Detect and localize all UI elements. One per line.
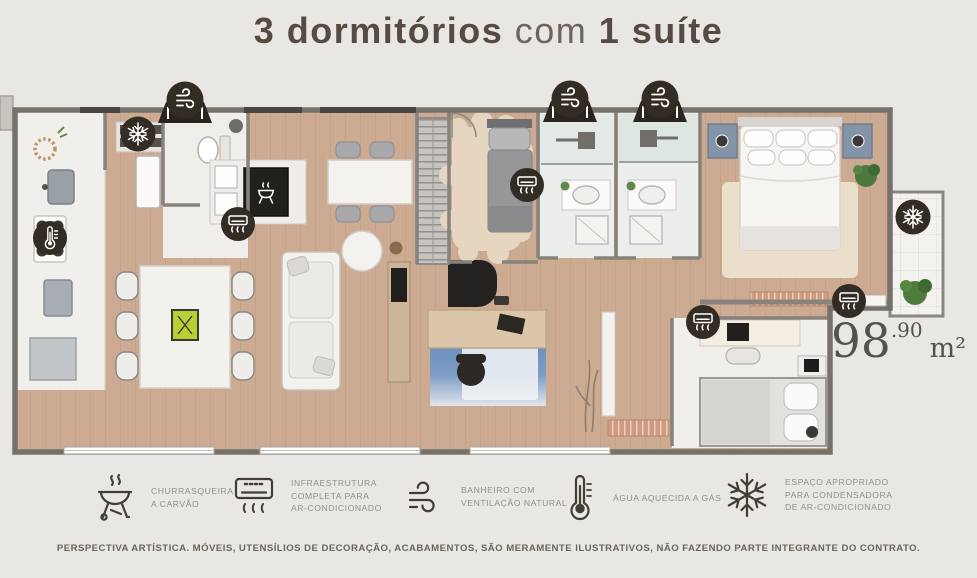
legend-label: CHURRASQUEIRA A CARVÃO bbox=[151, 485, 234, 511]
legend-item-thermo: ÁGUA AQUECIDA A GÁS bbox=[560, 472, 721, 524]
fridge bbox=[136, 156, 160, 208]
toilet bbox=[198, 137, 218, 163]
disclaimer-text: PERSPECTIVA ARTÍSTICA. MÓVEIS, UTENSÍLIO… bbox=[0, 543, 977, 554]
snowflake-badge bbox=[896, 200, 931, 235]
legend-item-snowflake: ESPAÇO APROPRIADO PARA CONDENSADORA DE A… bbox=[722, 470, 893, 520]
laptop bbox=[727, 323, 749, 341]
bath-plant bbox=[561, 182, 570, 191]
legend-label: BANHEIRO COM VENTILAÇÃO NATURAL bbox=[461, 484, 567, 510]
table-four-seats bbox=[328, 160, 412, 204]
wind-badge-pin bbox=[158, 82, 212, 124]
legend-item-grill: CHURRASQUEIRA A CARVÃO bbox=[92, 472, 234, 524]
second-sink bbox=[44, 280, 72, 316]
ac-badge bbox=[832, 284, 866, 318]
basin bbox=[639, 186, 665, 204]
snowflake-badge bbox=[121, 117, 156, 152]
basin bbox=[573, 186, 599, 204]
legend-label: INFRAESTRUTURA COMPLETA PARA AR-CONDICIO… bbox=[291, 477, 382, 516]
page: 3 dormitórios com 1 suíte bbox=[0, 0, 977, 578]
grill-icon bbox=[92, 472, 138, 524]
ac-badge bbox=[686, 305, 720, 339]
kitchen-sink bbox=[48, 170, 74, 204]
legend-label: ESPAÇO APROPRIADO PARA CONDENSADORA DE A… bbox=[785, 476, 893, 515]
dishwasher bbox=[30, 338, 76, 380]
wind-icon bbox=[402, 474, 448, 520]
staircase bbox=[417, 118, 449, 264]
bed2-headboard bbox=[487, 119, 532, 128]
shower-head bbox=[578, 132, 595, 149]
console-shelf bbox=[602, 312, 615, 416]
ac-unit-icon bbox=[230, 470, 278, 522]
legend-item-ac: INFRAESTRUTURA COMPLETA PARA AR-CONDICIO… bbox=[230, 470, 382, 522]
legend-label: ÁGUA AQUECIDA A GÁS bbox=[613, 492, 721, 505]
thermometer-badge bbox=[33, 221, 67, 255]
round-basin bbox=[229, 119, 243, 133]
area-label: 98.90m² bbox=[831, 318, 966, 365]
round-table bbox=[342, 231, 382, 271]
plant-pot bbox=[390, 242, 403, 255]
bed2-pillow bbox=[489, 128, 530, 150]
wind-badge-pin bbox=[543, 81, 597, 123]
legend-item-wind: BANHEIRO COM VENTILAÇÃO NATURAL bbox=[402, 474, 567, 520]
bathroom-2 bbox=[540, 112, 614, 258]
thermometer-icon bbox=[560, 472, 600, 524]
suite-headboard bbox=[738, 117, 842, 126]
bath-plant bbox=[627, 182, 636, 191]
area-integer: 98 bbox=[831, 314, 891, 369]
ac-badge bbox=[510, 168, 544, 202]
windows bbox=[64, 447, 610, 454]
wind-badge-pin bbox=[633, 81, 687, 123]
pillow bbox=[784, 383, 818, 410]
area-decimal: .90 bbox=[891, 318, 923, 342]
bedroom-3 bbox=[672, 318, 830, 448]
ac-badge bbox=[221, 207, 255, 241]
area-unit: m² bbox=[930, 333, 966, 364]
suite-bathroom bbox=[618, 112, 700, 258]
charcoal-grill bbox=[244, 168, 288, 216]
snowflake-icon bbox=[722, 470, 772, 520]
adjacent-wall-stub bbox=[0, 96, 13, 130]
tv bbox=[391, 268, 407, 302]
shower-head bbox=[640, 130, 657, 147]
office-chair bbox=[457, 358, 485, 386]
grand-piano bbox=[448, 260, 497, 307]
desk-chair bbox=[726, 348, 760, 364]
desk bbox=[428, 310, 546, 348]
